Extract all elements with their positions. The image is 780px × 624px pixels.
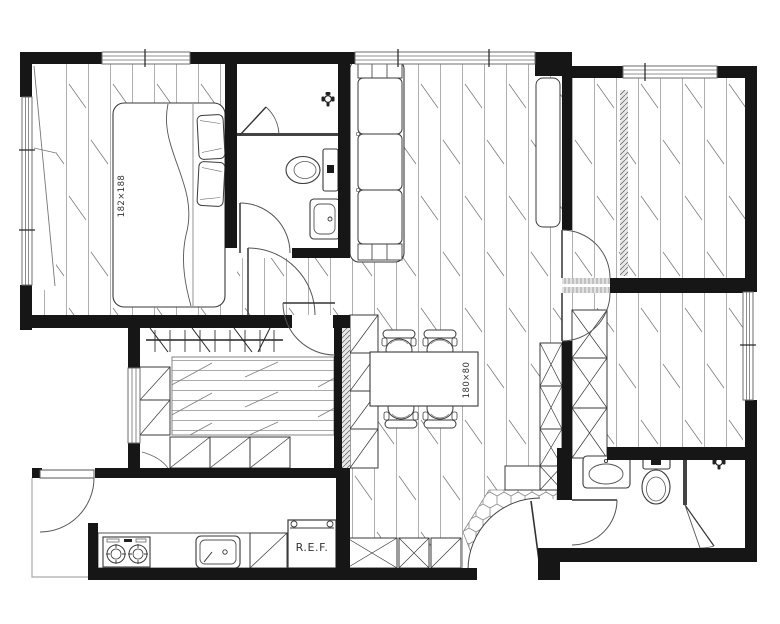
pillow	[197, 114, 225, 159]
wall-lining-hatch	[342, 325, 350, 472]
shoe-cabinet	[505, 466, 540, 490]
wall-segment	[338, 64, 350, 258]
door-threshold	[562, 278, 610, 284]
wall-segment	[336, 478, 350, 568]
wall-segment	[225, 64, 237, 248]
raised-platform	[172, 357, 334, 435]
wash-basin	[583, 456, 630, 488]
refrigerator: R.E.F.	[288, 520, 336, 568]
wall-segment	[745, 400, 757, 562]
base-cabinet	[250, 533, 287, 568]
wall-segment	[190, 52, 355, 64]
toilet	[642, 455, 670, 504]
wash-basin	[310, 199, 340, 239]
wall-segment	[538, 562, 560, 580]
wood-floor-hallway	[237, 258, 350, 315]
wood-floor-bedroom-2	[572, 78, 745, 278]
wall-segment	[538, 548, 757, 562]
dining-table-size-label: 180×80	[462, 362, 472, 399]
sofa	[350, 60, 404, 262]
window	[623, 63, 717, 81]
wall-segment	[128, 315, 292, 328]
wall-segment	[610, 278, 745, 293]
wood-floor-bedroom-1-edge	[32, 290, 56, 315]
closet-cabinet-left	[140, 367, 170, 435]
floor-plan-drawing: 182×188	[0, 0, 780, 624]
wall-segment	[572, 66, 623, 78]
wall-segment	[334, 325, 342, 472]
shower-partition	[683, 460, 687, 505]
floor-plan-canvas: 182×188	[0, 0, 780, 624]
bed-size-label: 182×188	[117, 175, 127, 217]
tv-console	[536, 78, 560, 227]
wall-segment	[20, 52, 32, 97]
door-threshold	[562, 287, 610, 293]
sliding-door	[128, 368, 140, 443]
wall-segment	[562, 341, 572, 458]
wall-segment	[607, 447, 755, 460]
wardrobe-track	[620, 90, 628, 276]
storage-column-right	[540, 343, 562, 466]
wall-segment	[340, 568, 477, 580]
closet-cabinet-bottom	[170, 437, 290, 468]
window	[102, 49, 190, 67]
wall-segment	[88, 568, 350, 580]
wall-segment	[20, 315, 140, 328]
wall-segment	[535, 52, 572, 76]
stove	[103, 537, 150, 567]
bedroom-2	[620, 90, 628, 276]
shower-partition	[237, 133, 338, 136]
wall-segment	[128, 315, 140, 370]
wall-segment	[557, 448, 572, 500]
refrigerator-label: R.E.F.	[296, 541, 329, 554]
double-bed: 182×188	[113, 103, 225, 307]
window	[355, 49, 535, 67]
wall-segment	[745, 76, 757, 292]
wall-segment	[20, 52, 102, 64]
kitchen-sink	[196, 536, 240, 568]
wall-segment	[562, 73, 572, 230]
pillow	[197, 161, 225, 206]
wall-segment	[95, 468, 350, 478]
bottom-cabinets	[347, 538, 461, 568]
